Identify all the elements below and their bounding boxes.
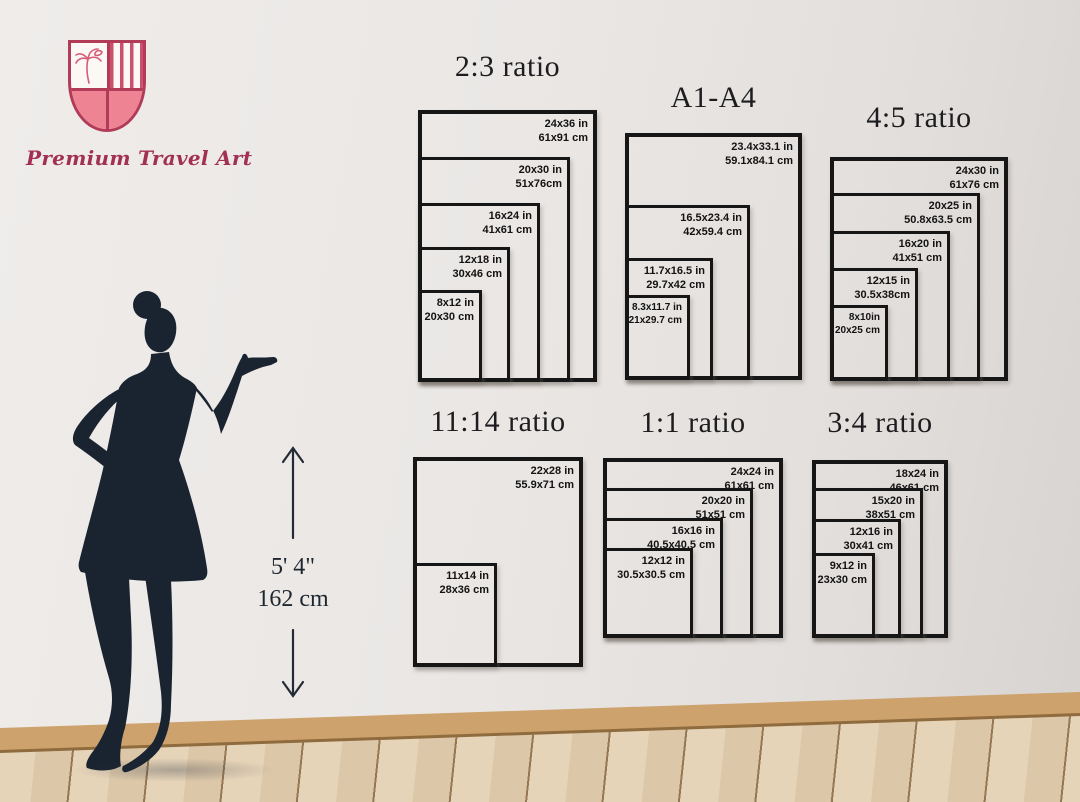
brand-name: Premium Travel Art — [26, 146, 216, 170]
size-cm: 30.5x30.5 cm — [617, 568, 685, 582]
size-inches: 24x24 in — [724, 465, 774, 479]
shield-stripes — [107, 43, 143, 88]
palm-tree-icon — [73, 45, 107, 87]
size-inches: 12x16 in — [843, 525, 893, 539]
size-cm: 42x59.4 cm — [680, 225, 742, 239]
size-box: 8x10in20x25 cm — [830, 305, 888, 381]
size-cm: 59.1x84.1 cm — [725, 154, 793, 168]
size-cm: 20x30 cm — [424, 310, 474, 324]
size-inches: 12x15 in — [854, 274, 910, 288]
size-inches: 15x20 in — [865, 494, 915, 508]
size-group-2-3: 2:3 ratio 24x36 in61x91 cm 20x30 in51x76… — [418, 110, 597, 382]
shield-lower-half — [71, 88, 143, 129]
height-feet-inches: 5' 4" — [233, 554, 353, 581]
size-inches: 20x20 in — [695, 494, 745, 508]
size-inches: 16x20 in — [892, 237, 942, 251]
size-inches: 16x16 in — [647, 524, 715, 538]
size-cm: 61x76 cm — [949, 178, 999, 192]
height-centimeters: 162 cm — [233, 586, 353, 613]
group-title: A1-A4 — [671, 81, 757, 115]
size-group-11-14: 11:14 ratio 22x28 in55.9x71 cm 11x14 in2… — [413, 457, 583, 667]
size-cm: 50.8x63.5 cm — [904, 213, 972, 227]
size-inches: 18x24 in — [889, 467, 939, 481]
size-inches: 16x24 in — [482, 209, 532, 223]
size-inches: 24x36 in — [538, 117, 588, 131]
size-inches: 9x12 in — [817, 559, 867, 573]
size-cm: 61x91 cm — [538, 131, 588, 145]
size-inches: 23.4x33.1 in — [725, 140, 793, 154]
size-inches: 16.5x23.4 in — [680, 211, 742, 225]
size-cm: 41x51 cm — [892, 251, 942, 265]
size-box: 11x14 in28x36 cm — [413, 563, 497, 667]
brand-shield-icon — [68, 40, 146, 132]
size-inches: 8.3x11.7 in — [629, 301, 682, 314]
size-cm: 30x41 cm — [843, 539, 893, 553]
size-cm: 55.9x71 cm — [515, 478, 574, 492]
size-group-a1-a4: A1-A4 23.4x33.1 in59.1x84.1 cm 16.5x23.4… — [625, 133, 802, 380]
size-inches: 8x10in — [835, 311, 880, 324]
woman-silhouette — [55, 288, 285, 788]
size-inches: 22x28 in — [515, 464, 574, 478]
size-cm: 23x30 cm — [817, 573, 867, 587]
size-cm: 30.5x38cm — [854, 288, 910, 302]
size-cm: 41x61 cm — [482, 223, 532, 237]
size-inches: 12x18 in — [452, 253, 502, 267]
size-inches: 11.7x16.5 in — [644, 264, 705, 278]
size-box: 9x12 in23x30 cm — [812, 553, 875, 638]
size-inches: 12x12 in — [617, 554, 685, 568]
size-cm: 21x29.7 cm — [629, 314, 682, 327]
size-box: 12x12 in30.5x30.5 cm — [603, 548, 693, 638]
size-box: 8.3x11.7 in21x29.7 cm — [625, 295, 690, 380]
size-group-3-4: 3:4 ratio 18x24 in46x61 cm 15x20 in38x51… — [812, 460, 948, 638]
size-inches: 20x30 in — [516, 163, 563, 177]
group-title: 1:1 ratio — [640, 406, 745, 440]
size-cm: 20x25 cm — [835, 324, 880, 337]
size-cm: 51x76cm — [516, 177, 563, 191]
group-title: 11:14 ratio — [430, 405, 565, 439]
size-inches: 11x14 in — [439, 569, 489, 583]
group-title: 3:4 ratio — [827, 406, 932, 440]
group-title: 4:5 ratio — [866, 101, 971, 135]
size-guide-image: Premium Travel Art 5' 4" 162 cm 2:3 rati… — [0, 0, 1080, 802]
size-inches: 20x25 in — [904, 199, 972, 213]
size-cm: 30x46 cm — [452, 267, 502, 281]
size-box: 8x12 in20x30 cm — [418, 290, 482, 382]
size-cm: 28x36 cm — [439, 583, 489, 597]
group-title: 2:3 ratio — [455, 50, 560, 84]
size-group-1-1: 1:1 ratio 24x24 in61x61 cm 20x20 in51x51… — [603, 458, 783, 638]
size-inches: 8x12 in — [424, 296, 474, 310]
size-cm: 29.7x42 cm — [644, 278, 705, 292]
size-inches: 24x30 in — [949, 164, 999, 178]
size-group-4-5: 4:5 ratio 24x30 in61x76 cm 20x25 in50.8x… — [830, 157, 1008, 381]
